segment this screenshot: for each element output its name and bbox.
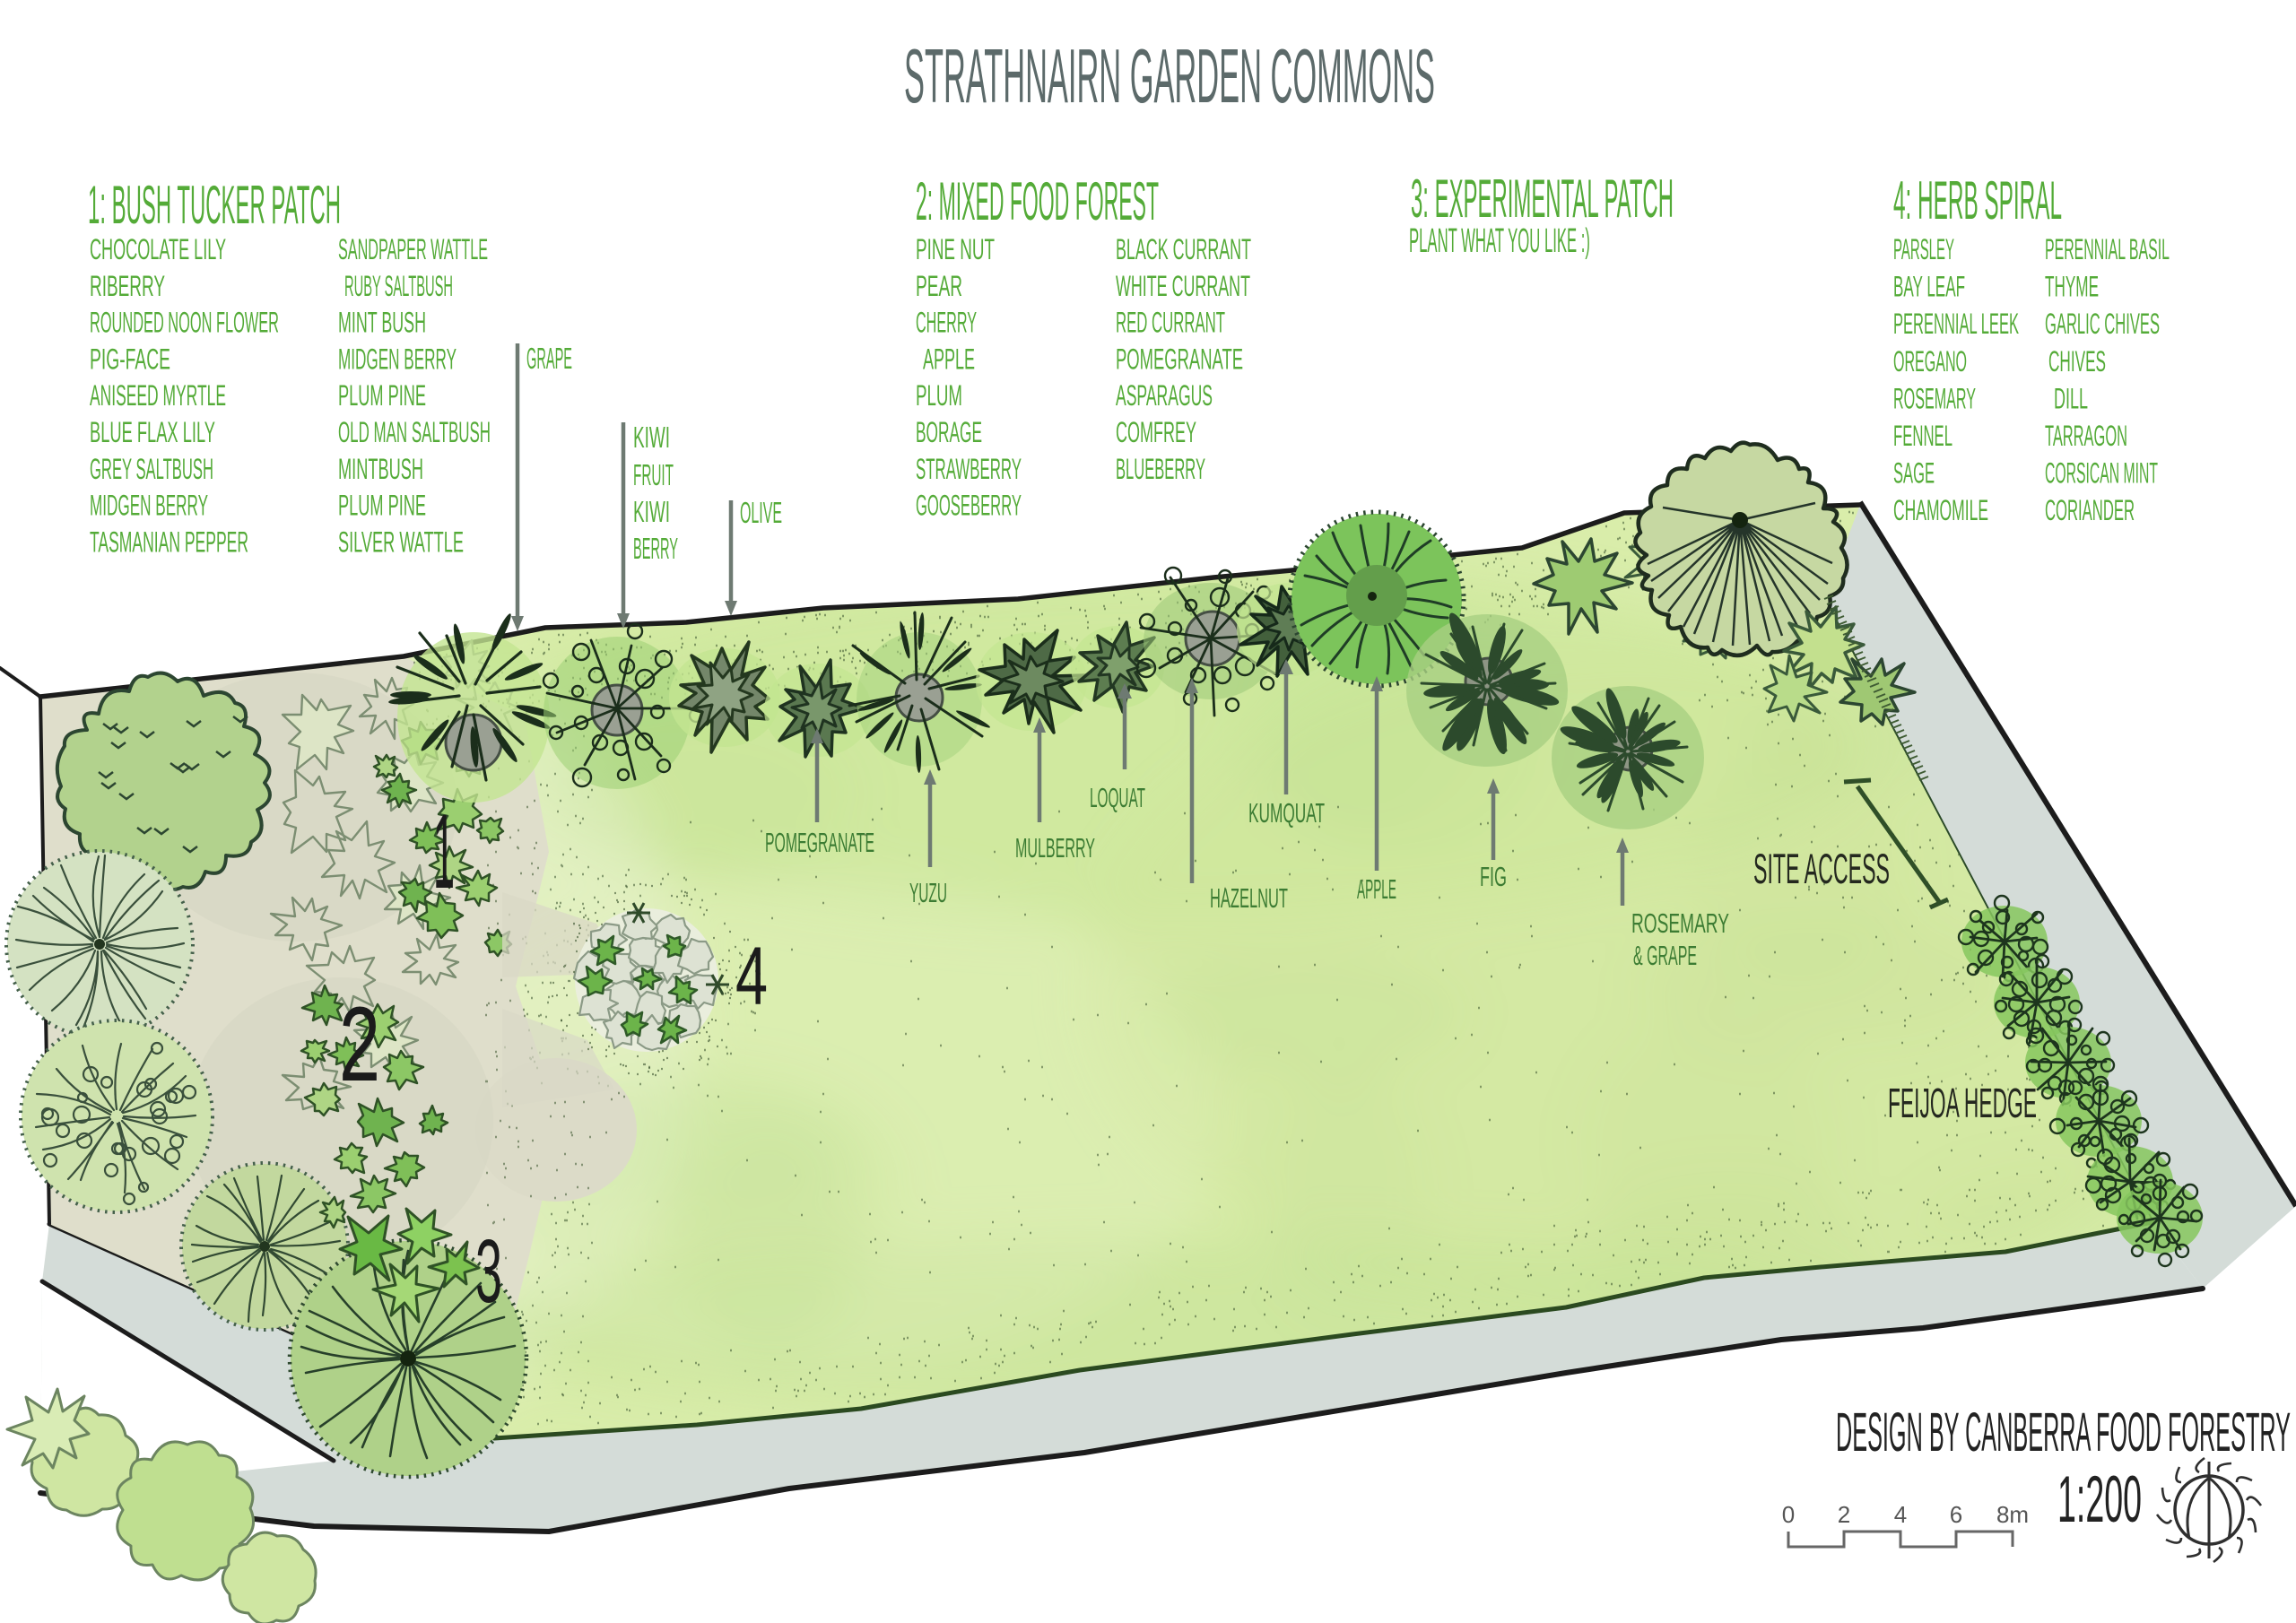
svg-text:OREGANO: OREGANO bbox=[1893, 345, 1967, 378]
svg-text:PLANT WHAT YOU LIKE :): PLANT WHAT YOU LIKE :) bbox=[1409, 222, 1590, 260]
svg-text:ROUNDED NOON FLOWER: ROUNDED NOON FLOWER bbox=[90, 307, 279, 339]
svg-text:8m: 8m bbox=[1996, 1501, 2029, 1528]
svg-text:RED CURRANT: RED CURRANT bbox=[1116, 307, 1225, 339]
svg-text:DILL: DILL bbox=[2054, 382, 2088, 414]
svg-text:APPLE: APPLE bbox=[923, 343, 975, 375]
svg-text:4: HERB SPIRAL: 4: HERB SPIRAL bbox=[1893, 170, 2062, 230]
svg-text:& GRAPE: & GRAPE bbox=[1633, 940, 1697, 971]
svg-text:FENNEL: FENNEL bbox=[1893, 420, 1952, 452]
svg-text:SITE ACCESS: SITE ACCESS bbox=[1753, 845, 1890, 892]
svg-text:OLD MAN SALTBUSH: OLD MAN SALTBUSH bbox=[338, 416, 491, 448]
svg-text:ROSEMARY: ROSEMARY bbox=[1893, 382, 1976, 414]
svg-text:STRAWBERRY: STRAWBERRY bbox=[916, 453, 1022, 485]
svg-text:4: 4 bbox=[1894, 1501, 1907, 1528]
svg-text:OLIVE: OLIVE bbox=[740, 496, 782, 529]
svg-text:KIWI: KIWI bbox=[633, 421, 670, 454]
svg-text:3: EXPERIMENTAL PATCH: 3: EXPERIMENTAL PATCH bbox=[1411, 169, 1674, 229]
svg-text:MIDGEN BERRY: MIDGEN BERRY bbox=[338, 343, 457, 375]
svg-text:MULBERRY: MULBERRY bbox=[1015, 832, 1095, 864]
svg-text:TASMANIAN PEPPER: TASMANIAN PEPPER bbox=[90, 525, 248, 558]
svg-text:4: 4 bbox=[735, 931, 768, 1022]
svg-text:ANISEED MYRTLE: ANISEED MYRTLE bbox=[90, 379, 226, 412]
svg-text:TARRAGON: TARRAGON bbox=[2045, 420, 2127, 452]
svg-text:0: 0 bbox=[1782, 1501, 1795, 1528]
svg-text:POMEGRANATE: POMEGRANATE bbox=[1116, 343, 1243, 375]
svg-text:ROSEMARY: ROSEMARY bbox=[1631, 907, 1729, 939]
svg-text:GRAPE: GRAPE bbox=[526, 342, 572, 375]
svg-text:PIG-FACE: PIG-FACE bbox=[90, 343, 170, 375]
svg-text:RUBY SALTBUSH: RUBY SALTBUSH bbox=[344, 270, 453, 302]
svg-text:GARLIC CHIVES: GARLIC CHIVES bbox=[2045, 308, 2160, 340]
svg-text:BORAGE: BORAGE bbox=[916, 416, 982, 448]
svg-text:SILVER WATTLE: SILVER WATTLE bbox=[338, 525, 464, 558]
svg-text:PLUM: PLUM bbox=[916, 379, 962, 412]
svg-text:CHAMOMILE: CHAMOMILE bbox=[1893, 494, 1988, 526]
svg-text:COMFREY: COMFREY bbox=[1116, 416, 1196, 448]
svg-text:PINE NUT: PINE NUT bbox=[916, 233, 995, 265]
svg-text:SAGE: SAGE bbox=[1893, 457, 1935, 490]
svg-text:MINT BUSH: MINT BUSH bbox=[338, 307, 426, 339]
svg-text:GREY SALTBUSH: GREY SALTBUSH bbox=[90, 453, 213, 485]
svg-text:BLACK CURRANT: BLACK CURRANT bbox=[1116, 233, 1251, 265]
svg-text:6: 6 bbox=[1950, 1501, 1962, 1528]
svg-text:MIDGEN BERRY: MIDGEN BERRY bbox=[90, 490, 208, 522]
svg-text:THYME: THYME bbox=[2045, 271, 2099, 303]
svg-text:YUZU: YUZU bbox=[909, 877, 947, 908]
svg-text:WHITE CURRANT: WHITE CURRANT bbox=[1116, 270, 1250, 302]
svg-text:MINTBUSH: MINTBUSH bbox=[338, 453, 423, 485]
svg-text:SANDPAPER WATTLE: SANDPAPER WATTLE bbox=[338, 233, 488, 265]
svg-text:PARSLEY: PARSLEY bbox=[1893, 233, 1954, 265]
svg-text:ASPARAGUS: ASPARAGUS bbox=[1116, 379, 1213, 412]
svg-text:POMEGRANATE: POMEGRANATE bbox=[765, 827, 874, 858]
svg-text:PLUM PINE: PLUM PINE bbox=[338, 490, 426, 522]
svg-text:STRATHNAIRN GARDEN COMMONS: STRATHNAIRN GARDEN COMMONS bbox=[904, 34, 1435, 119]
svg-text:CORSICAN MINT: CORSICAN MINT bbox=[2045, 457, 2158, 490]
svg-text:KIWI: KIWI bbox=[633, 495, 670, 528]
svg-text:LOQUAT: LOQUAT bbox=[1090, 782, 1145, 813]
svg-text:CHERRY: CHERRY bbox=[916, 307, 977, 339]
svg-text:FIG: FIG bbox=[1480, 861, 1507, 892]
svg-text:HAZELNUT: HAZELNUT bbox=[1210, 882, 1288, 914]
svg-text:BERRY: BERRY bbox=[633, 532, 678, 565]
svg-text:FRUIT: FRUIT bbox=[633, 458, 674, 491]
svg-text:1: 1 bbox=[433, 793, 455, 911]
svg-text:CORIANDER: CORIANDER bbox=[2045, 494, 2135, 526]
svg-text:1: BUSH TUCKER PATCH: 1: BUSH TUCKER PATCH bbox=[88, 175, 341, 235]
svg-text:BLUEBERRY: BLUEBERRY bbox=[1116, 453, 1205, 485]
svg-text:GOOSEBERRY: GOOSEBERRY bbox=[916, 490, 1022, 522]
svg-text:2: 2 bbox=[1838, 1501, 1850, 1528]
svg-text:PLUM PINE: PLUM PINE bbox=[338, 379, 426, 412]
svg-text:2: MIXED FOOD FOREST: 2: MIXED FOOD FOREST bbox=[916, 171, 1159, 231]
svg-text:CHIVES: CHIVES bbox=[2048, 345, 2106, 378]
svg-text:BLUE FLAX LILY: BLUE FLAX LILY bbox=[90, 416, 215, 448]
svg-text:APPLE: APPLE bbox=[1357, 873, 1396, 905]
svg-text:2: 2 bbox=[339, 985, 380, 1104]
svg-text:DESIGN BY CANBERRA FOOD FOREST: DESIGN BY CANBERRA FOOD FORESTRY bbox=[1836, 1402, 2291, 1462]
svg-text:RIBERRY: RIBERRY bbox=[90, 270, 165, 302]
svg-text:CHOCOLATE LILY: CHOCOLATE LILY bbox=[90, 233, 226, 265]
svg-text:PERENNIAL BASIL: PERENNIAL BASIL bbox=[2045, 233, 2170, 265]
svg-text:BAY LEAF: BAY LEAF bbox=[1893, 271, 1965, 303]
svg-text:PERENNIAL LEEK: PERENNIAL LEEK bbox=[1893, 308, 2019, 340]
svg-text:3: 3 bbox=[475, 1221, 502, 1322]
svg-text:PEAR: PEAR bbox=[916, 270, 962, 302]
svg-text:KUMQUAT: KUMQUAT bbox=[1248, 797, 1325, 829]
svg-text:1:200: 1:200 bbox=[2057, 1463, 2142, 1536]
svg-text:FEIJOA HEDGE: FEIJOA HEDGE bbox=[1888, 1080, 2037, 1126]
